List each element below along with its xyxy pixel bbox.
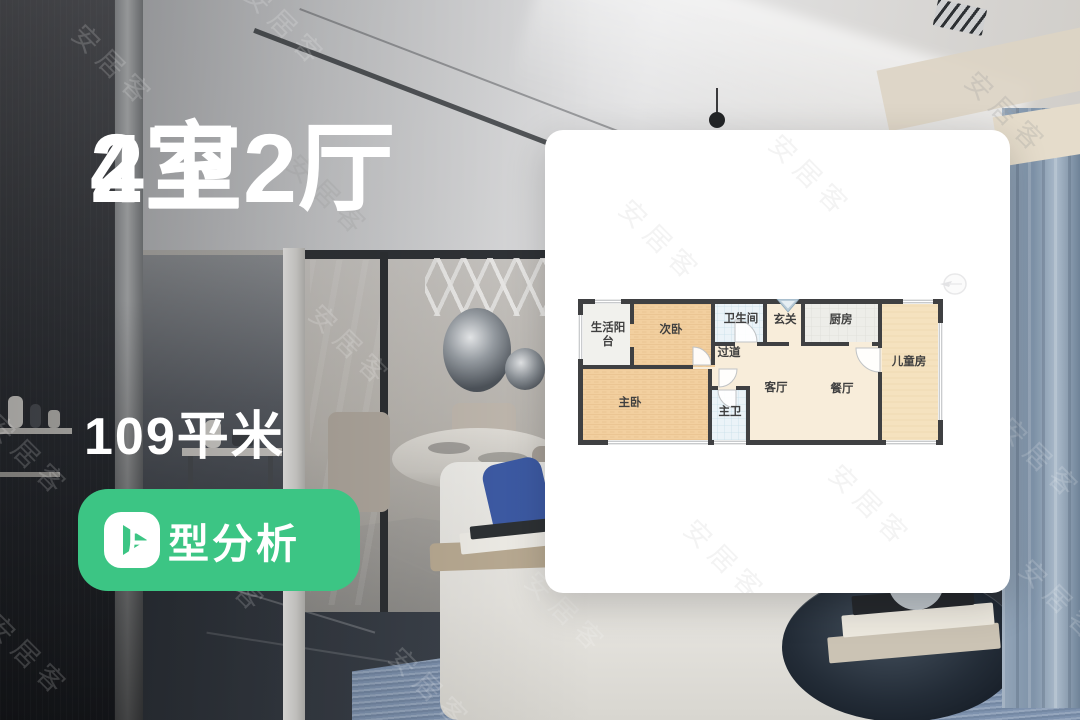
floorplan-analysis-button[interactable]: 户型分析 [78, 489, 360, 591]
floorplan-card: 安居客 安居客 安居客 安居客 [545, 130, 1010, 593]
analysis-button-label: 户型分析 [124, 510, 300, 570]
floorplan-drawing: 生活阳台 次卧 卫生间 玄关 厨房 儿童房 过道 主卧 主卫 客厅 餐厅 [578, 299, 943, 445]
room-label-corridor: 过道 [708, 347, 750, 361]
compass-icon [936, 270, 970, 300]
area-text: 109平米 [84, 394, 285, 469]
listing-cover: 安居客 安居客 安居客 安居客 安居客 安居客 安居客 安居客 安居客 安居客 … [0, 0, 1080, 720]
room-label-kids-room: 儿童房 [875, 356, 943, 370]
room-label-master-bathroom: 主卫 [709, 406, 751, 420]
room-label-living-balcony: 生活阳台 [586, 322, 630, 349]
room-label-kitchen: 厨房 [811, 314, 871, 328]
watermark: 安居客 [821, 454, 923, 556]
room-label-bathroom: 卫生间 [710, 313, 772, 327]
watermark: 安居客 [761, 130, 863, 226]
watermark: 安居客 [611, 189, 713, 291]
headline-line2: 2卫 [90, 110, 243, 228]
watermark: 安居客 [676, 509, 778, 593]
room-label-dining-room: 餐厅 [812, 383, 872, 397]
room-label-second-bedroom: 次卧 [641, 324, 701, 338]
room-label-entryway: 玄关 [764, 314, 806, 328]
room-label-living-room: 客厅 [746, 382, 806, 396]
room-label-master-bedroom: 主卧 [600, 397, 660, 411]
